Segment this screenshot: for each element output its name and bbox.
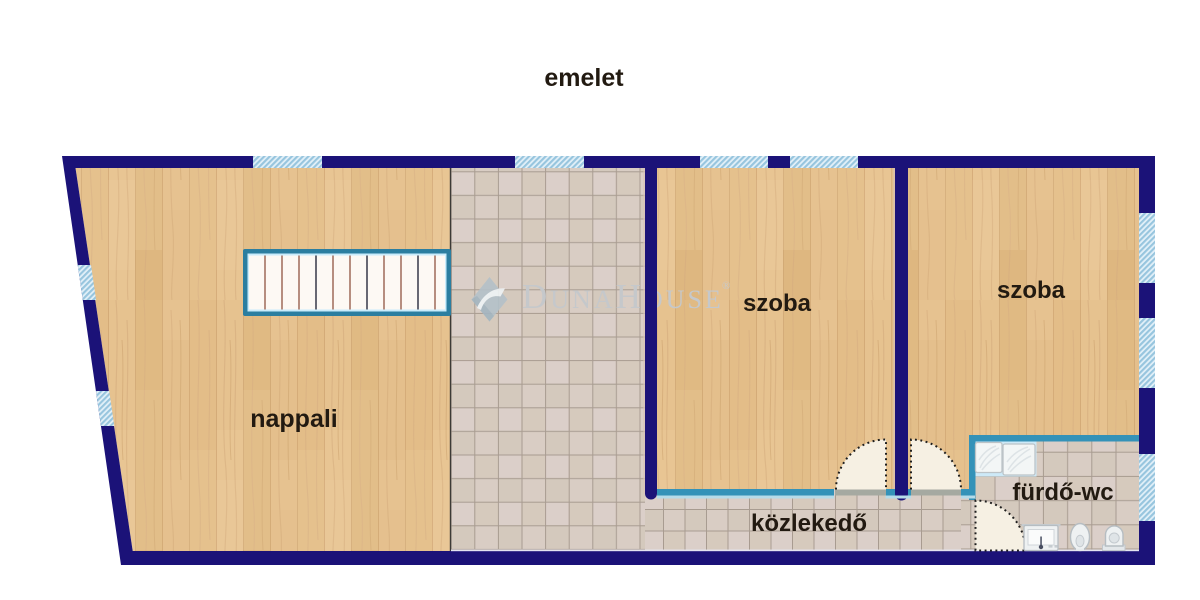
svg-text:szoba: szoba bbox=[997, 277, 1066, 304]
svg-text:szoba: szoba bbox=[743, 290, 812, 317]
svg-text:®: ® bbox=[722, 280, 730, 292]
svg-text:fürdő-wc: fürdő-wc bbox=[1012, 479, 1113, 506]
svg-text:közlekedő: közlekedő bbox=[751, 510, 867, 537]
svg-text:nappali: nappali bbox=[250, 405, 338, 433]
svg-text:emelet: emelet bbox=[544, 64, 624, 92]
